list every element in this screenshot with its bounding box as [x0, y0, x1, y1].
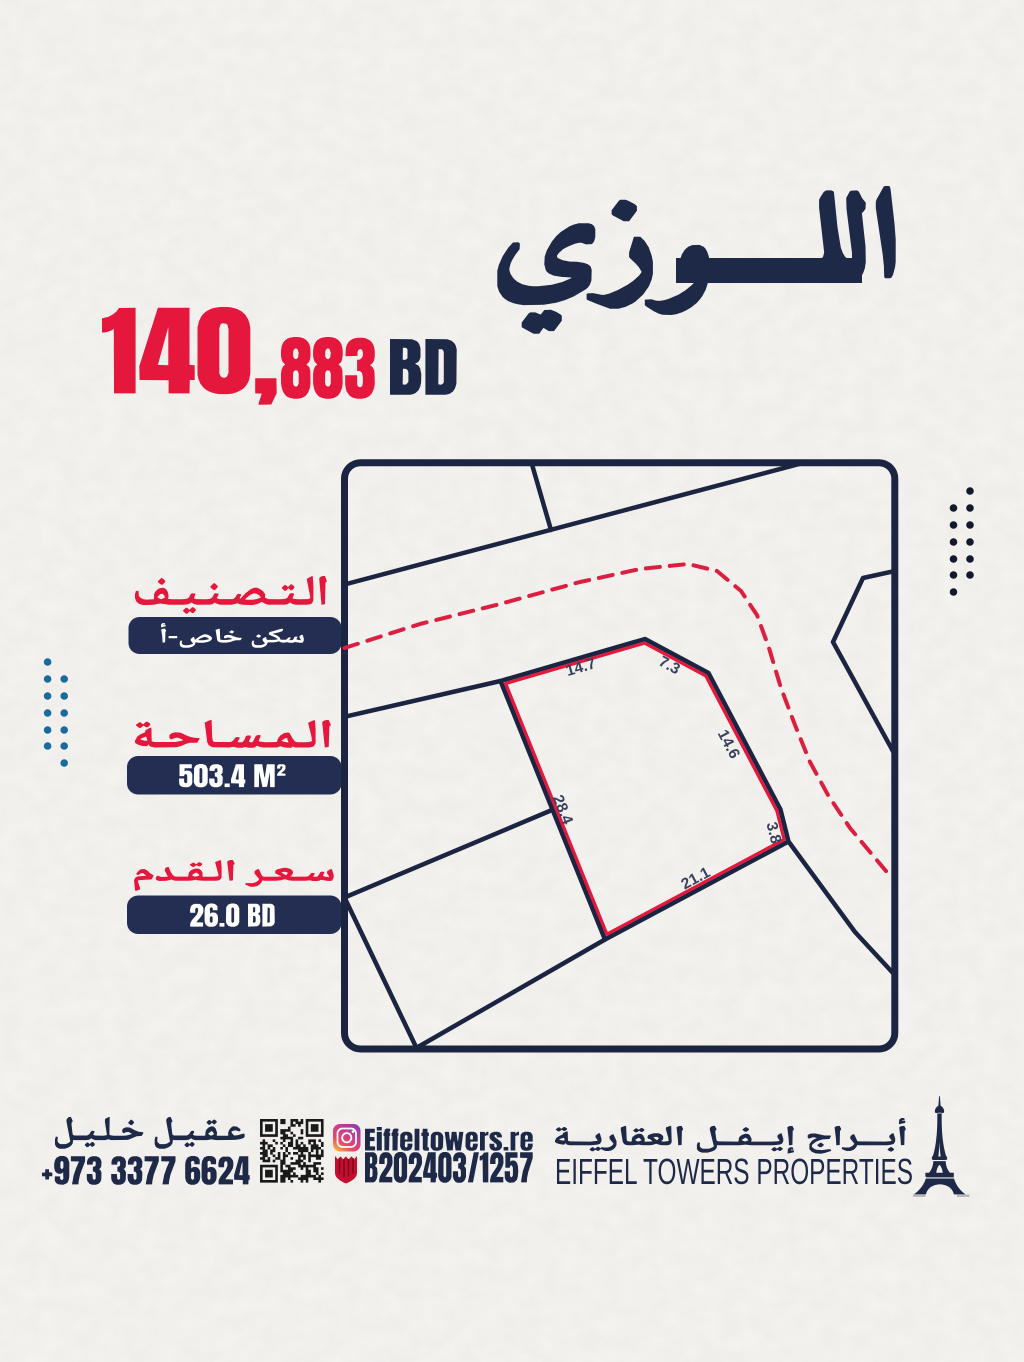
svg-text:EIFFEL TOWERS PROPERTIES: EIFFEL TOWERS PROPERTIES — [555, 1151, 913, 1192]
